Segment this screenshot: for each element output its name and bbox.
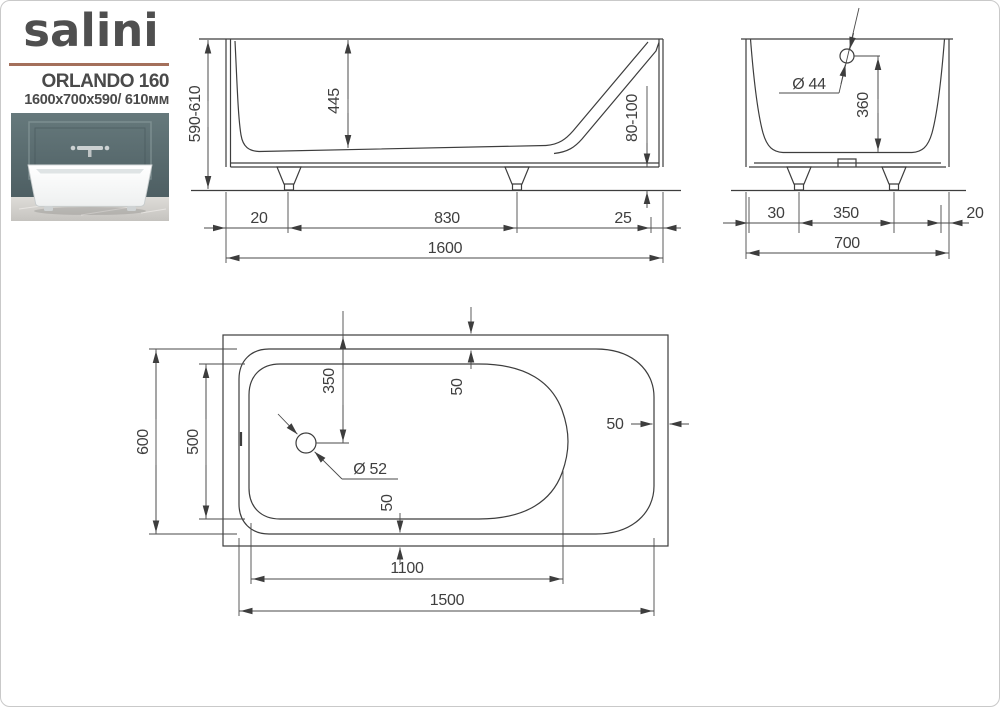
end-view: Ø 44 360 30 350 20 700 <box>723 8 984 259</box>
end-view-dimensions: 360 30 350 20 700 <box>723 56 984 259</box>
dim-left-foot-offset: 20 <box>250 210 268 227</box>
spec-sheet: salini ORLANDO 160 1600x700x590/ 610мм <box>0 0 1000 707</box>
side-foot-left <box>277 167 301 190</box>
technical-drawing: 590-610 445 80-100 20 830 25 <box>1 1 1000 707</box>
dim-drain-offset: 350 <box>321 368 338 394</box>
plan-outer-rim <box>223 335 668 546</box>
dim-rim-gap-bottom: 50 <box>379 494 396 512</box>
dim-height-range: 590-610 <box>187 85 204 142</box>
dim-floor-width: 500 <box>185 429 202 455</box>
end-view-outline <box>731 39 966 191</box>
dim-overflow-diameter: Ø 44 <box>792 76 826 93</box>
drain-callout: Ø 52 <box>278 414 398 479</box>
dim-right-edge-offset: 25 <box>614 210 632 227</box>
end-foot-right <box>882 167 906 190</box>
dim-total-length: 1600 <box>428 240 463 257</box>
plan-view-dimensions: 600 500 350 50 50 50 <box>135 307 689 616</box>
side-foot-right <box>505 167 529 190</box>
dim-feet-spacing: 830 <box>434 210 460 227</box>
plan-view: Ø 52 600 500 350 50 50 <box>135 307 689 616</box>
plan-view-outline <box>223 335 668 546</box>
dim-total-width: 700 <box>834 235 860 252</box>
dim-inner-rim-length: 1500 <box>430 592 465 609</box>
dim-inner-depth: 445 <box>326 88 343 114</box>
plan-inner-rim <box>239 349 654 534</box>
side-view-outline <box>191 39 681 191</box>
overflow-callout: Ø 44 <box>779 8 859 93</box>
dim-floor-length: 1100 <box>390 560 424 577</box>
dim-inner-rim-width: 600 <box>135 429 152 455</box>
end-foot-left <box>787 167 811 190</box>
drain-hole <box>296 433 316 453</box>
dim-drain-diameter: Ø 52 <box>353 461 387 478</box>
dim-rim-gap-top: 50 <box>449 378 466 396</box>
side-view: 590-610 445 80-100 20 830 25 <box>187 39 681 263</box>
dim-overflow-height: 360 <box>855 92 872 118</box>
dim-left-foot-offset: 30 <box>767 205 785 222</box>
dim-foot-height-range: 80-100 <box>624 94 641 142</box>
dim-feet-spacing: 350 <box>833 205 859 222</box>
dim-rim-gap-right: 50 <box>606 416 624 433</box>
plan-floor-outline <box>249 364 568 519</box>
dim-right-edge-offset: 20 <box>966 205 984 222</box>
